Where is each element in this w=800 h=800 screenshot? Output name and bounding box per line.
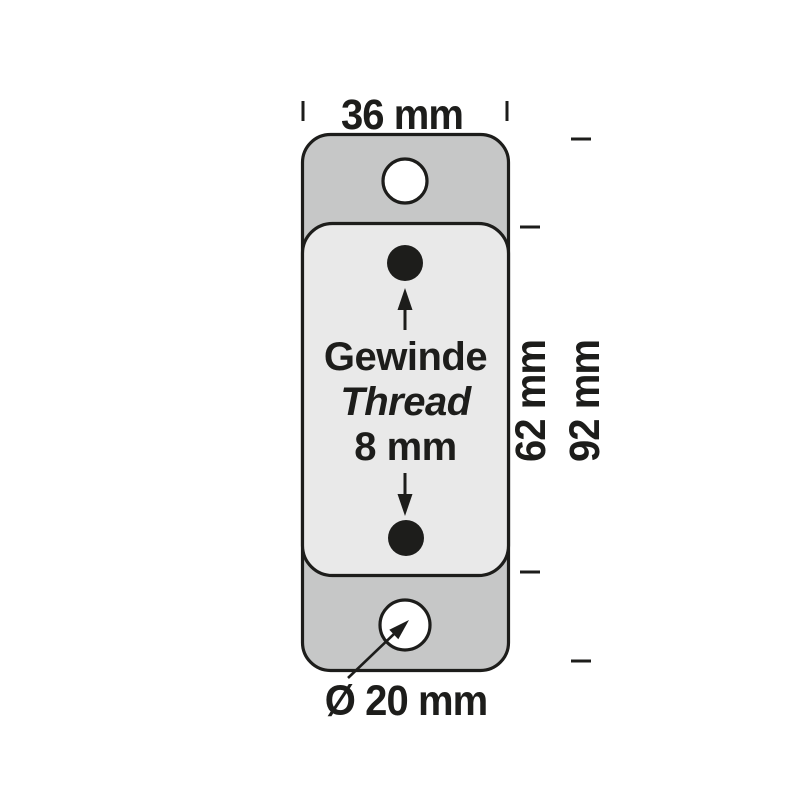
- thread-note: Gewinde Thread 8 mm: [302, 335, 509, 470]
- thread-hole-bottom: [388, 520, 424, 556]
- inner-height-dimension-label: 62 mm: [508, 340, 554, 462]
- thread-note-line-en: Thread: [302, 380, 509, 425]
- hole-diameter-label: Ø 20 mm: [325, 678, 487, 724]
- thread-note-line-size: 8 mm: [302, 425, 509, 470]
- width-dimension-label: 36 mm: [341, 92, 463, 138]
- dimension-drawing-canvas: 36 mm Gewinde Thread 8 mm 62 mm 92 mm Ø …: [0, 0, 800, 800]
- thread-hole-top: [387, 245, 423, 281]
- thread-note-line-de: Gewinde: [302, 335, 509, 380]
- outer-height-dimension-label: 92 mm: [562, 340, 608, 462]
- top-mounting-hole: [383, 159, 427, 203]
